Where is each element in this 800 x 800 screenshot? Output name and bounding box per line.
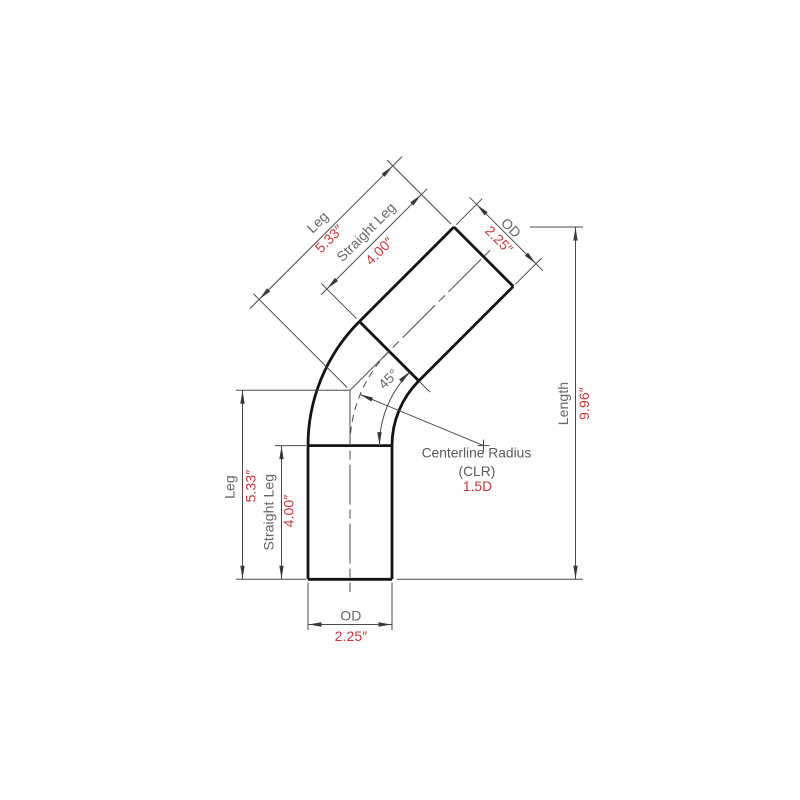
svg-text:Length: Length (555, 382, 571, 425)
svg-text:Centerline Radius: Centerline Radius (422, 446, 532, 461)
svg-text:(CLR): (CLR) (459, 464, 496, 479)
svg-text:5.33″: 5.33″ (242, 470, 258, 503)
svg-text:Leg: Leg (222, 475, 238, 499)
svg-text:4.00″: 4.00″ (281, 495, 297, 528)
svg-text:2.25″: 2.25″ (335, 628, 368, 644)
svg-text:1.5D: 1.5D (463, 479, 492, 494)
svg-text:Straight Leg: Straight Leg (261, 474, 277, 551)
svg-text:OD: OD (340, 608, 361, 624)
svg-text:9.96″: 9.96″ (576, 387, 592, 420)
